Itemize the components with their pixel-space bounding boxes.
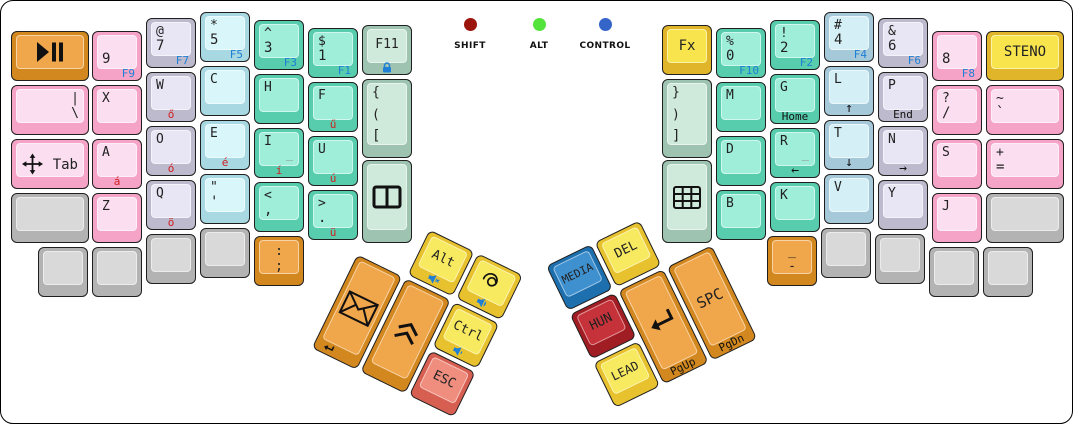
key-tilde-backtick[interactable]: ~` [986,85,1064,135]
key-d[interactable]: D [716,136,766,186]
key-label: _ [286,148,293,160]
key-label: í [255,165,303,177]
key-label: U [318,143,326,156]
key-label: % [726,35,734,48]
key-g[interactable]: GHome [770,74,820,124]
key-label: F11 [363,38,411,51]
key-label: 1 [318,49,326,63]
key-label: < [264,189,272,202]
keytop-surface [826,232,866,266]
key-label: W [156,79,164,92]
key-plus-equals[interactable]: += [986,139,1064,189]
key-label: ~ [996,92,1004,105]
key-label: G [780,81,788,94]
key-label: F5 [230,49,243,61]
key-9[interactable]: 9F9 [92,31,142,81]
key-label: \ [71,107,79,120]
key-blank-rb4[interactable] [983,247,1033,297]
key-tab[interactable]: Tab [11,139,89,189]
key-label: STENO [987,32,1063,71]
key-label: ] [672,129,680,143]
key-b[interactable]: B [716,190,766,240]
key-label: F7 [176,55,189,67]
key-label: 3 [264,41,272,55]
key-label: X [102,92,110,105]
key-a[interactable]: Aá [92,139,142,189]
key-label: Y [888,187,896,200]
key-label: ( [372,108,380,121]
key-n[interactable]: N→ [878,126,928,176]
key-label: F9 [122,68,135,80]
key-label: 7 [156,39,164,53]
key-label: P [888,79,896,92]
keytop-surface [16,197,84,231]
key-blank-l-row4[interactable] [11,193,89,243]
grid-icon [663,161,711,233]
key-label: J [942,200,950,213]
key-steno[interactable]: STENO [986,31,1064,81]
control-led-dot [599,18,612,31]
key-m[interactable]: M [716,82,766,132]
key-blank-rb2[interactable] [875,234,925,284]
key-label: ó [147,163,195,175]
key-label: 5 [210,33,218,47]
key-label: I [264,135,272,148]
key-label: | [71,92,79,105]
key-label: F3 [284,57,297,69]
key-label: = [996,160,1004,174]
key-label: Q [156,187,164,200]
key-v[interactable]: V [824,174,874,224]
key-label: K [780,189,788,202]
key-label: N [888,133,896,146]
alt-led-dot [533,18,546,31]
key-blank-lb2[interactable] [92,247,142,297]
key-play-pause[interactable] [11,31,89,81]
key-label: → [879,163,927,175]
key-label: [ [372,129,380,143]
key-question-slash[interactable]: ?/ [932,85,982,135]
indicator-control: CONTROL [565,16,645,51]
key-label: F4 [854,49,867,61]
key-label: á [93,176,141,188]
key-q[interactable]: Qö [146,180,196,230]
keytop-surface [205,232,245,266]
key-r[interactable]: R_← [770,128,820,178]
key-label: é [201,157,249,169]
key-underscore-minus[interactable]: _- [767,236,817,286]
key-label: C [210,73,218,86]
key-label: F10 [739,65,759,77]
key-label: Home [771,111,819,123]
key-label: ' [210,195,218,209]
key-x[interactable]: X [92,85,142,135]
key-lcd[interactable] [362,160,412,243]
key-3[interactable]: ^3F3 [254,20,304,70]
keytop-surface [880,238,920,272]
key-label: _ [768,245,816,258]
key-period[interactable]: >.ü [308,190,358,240]
key-label: T [834,127,842,140]
key-label: F8 [962,68,975,80]
key-5[interactable]: *5F5 [200,12,250,62]
key-label: # [834,19,842,32]
key-label: _ [802,148,809,160]
key-w[interactable]: Wő [146,72,196,122]
key-label: Z [102,200,110,213]
key-label: M [726,89,734,102]
lock-icon [363,62,411,73]
key-label: 2 [780,41,788,55]
move-icon [22,154,43,175]
indicator-label: SHIFT [430,41,510,51]
indicator-label: CONTROL [565,41,645,51]
key-1[interactable]: $1F1 [308,28,358,78]
key-label: - [768,260,816,273]
key-label: . [318,211,326,225]
key-blank-lb4[interactable] [200,228,250,278]
key-blank-lb1[interactable] [38,247,88,297]
key-label: ü [309,227,357,239]
key-pipe-backslash[interactable]: |\ [11,85,89,135]
key-y[interactable]: Y [878,180,928,230]
key-colon-semicolon[interactable]: :; [254,236,304,286]
play-pause-icon [12,32,88,71]
key-8[interactable]: 8F8 [932,31,982,81]
key-l[interactable]: L↑ [824,66,874,116]
key-label: ú [309,173,357,185]
keyboard-board: |\Tab9F9XAáZ@7F7WőOóQö*5F5CEé"'^3F3HI_í<… [0,0,1073,424]
key-e[interactable]: Eé [200,120,250,170]
key-label: 8 [942,52,950,66]
key-label: ? [942,92,950,105]
key-label: ^ [264,27,272,40]
key-label: D [726,143,734,156]
key-0[interactable]: %0F10 [716,28,766,78]
keytop-surface [43,251,83,285]
key-label: F [318,89,326,102]
key-label: ! [780,27,788,40]
key-f11[interactable]: F11 [362,25,412,75]
key-label: + [996,146,1004,159]
key-k[interactable]: K [770,182,820,232]
key-label: * [210,19,218,32]
key-o[interactable]: Oó [146,126,196,176]
key-label: > [318,197,326,210]
key-label: B [726,197,734,210]
key-label: F1 [338,65,351,77]
lcd-icon [363,161,411,233]
key-j[interactable]: J [932,193,982,243]
key-s[interactable]: S [932,139,982,189]
key-f[interactable]: Fű [308,82,358,132]
key-label: Tab [53,158,78,172]
key-t[interactable]: T↓ [824,120,874,170]
key-label: : [255,245,303,258]
key-i[interactable]: I_í [254,128,304,178]
key-braces-open[interactable]: {([ [362,79,412,158]
key-label: O [156,133,164,146]
key-label: ` [996,106,1004,120]
key-label: ű [309,119,357,131]
key-comma[interactable]: <, [254,182,304,232]
key-label: H [264,81,272,94]
shift-led-dot [464,18,477,31]
key-label: V [834,181,842,194]
key-label: 6 [888,39,896,53]
key-label: L [834,73,842,86]
key-label: MEDIA [547,245,607,301]
key-label: ↑ [825,103,873,115]
keytop-surface [991,197,1059,231]
key-6[interactable]: &6F6 [878,18,928,68]
key-label: E [210,127,218,140]
key-label: $ [318,35,326,48]
key-label: F6 [908,55,921,67]
key-label: ← [771,165,819,177]
key-label: @ [156,25,164,38]
key-label: End [879,109,927,121]
key-label: A [102,146,110,159]
key-4[interactable]: #4F4 [824,12,874,62]
key-label: DEL [596,222,656,278]
key-7[interactable]: @7F7 [146,18,196,68]
key-z[interactable]: Z [92,193,142,243]
key-blank-r-row4[interactable] [986,193,1064,243]
keytop-surface [151,238,191,272]
key-label: 9 [102,52,110,66]
key-keypad[interactable] [662,160,712,243]
key-label: Fx [663,26,711,65]
key-p[interactable]: PEnd [878,72,928,122]
key-blank-rb1[interactable] [821,228,871,278]
key-label: , [264,203,272,217]
key-label: & [888,25,896,38]
key-label: 0 [726,49,734,63]
keytop-surface [988,251,1028,285]
indicator-shift: SHIFT [430,16,510,51]
key-label: ↓ [825,157,873,169]
key-label: ; [255,260,303,273]
key-label: F2 [800,57,813,69]
key-braces-close[interactable]: })] [662,79,712,158]
key-label: ö [147,217,195,229]
key-blank-lb3[interactable] [146,234,196,284]
key-label: / [942,106,950,120]
key-quote[interactable]: "' [200,174,250,224]
key-label: ő [147,109,195,121]
keytop-surface [934,251,974,285]
key-fx[interactable]: Fx [662,25,712,75]
key-label: 4 [834,33,842,47]
key-label: " [210,181,218,194]
key-c[interactable]: C [200,66,250,116]
key-label: { [372,86,380,99]
key-h[interactable]: H [254,74,304,124]
key-2[interactable]: !2F2 [770,20,820,70]
key-label: R [780,135,788,148]
key-label: ) [672,108,680,121]
keytop-surface [97,251,137,285]
key-label: } [672,86,680,99]
key-blank-rb3[interactable] [929,247,979,297]
key-label: S [942,146,950,159]
key-u[interactable]: Uú [308,136,358,186]
